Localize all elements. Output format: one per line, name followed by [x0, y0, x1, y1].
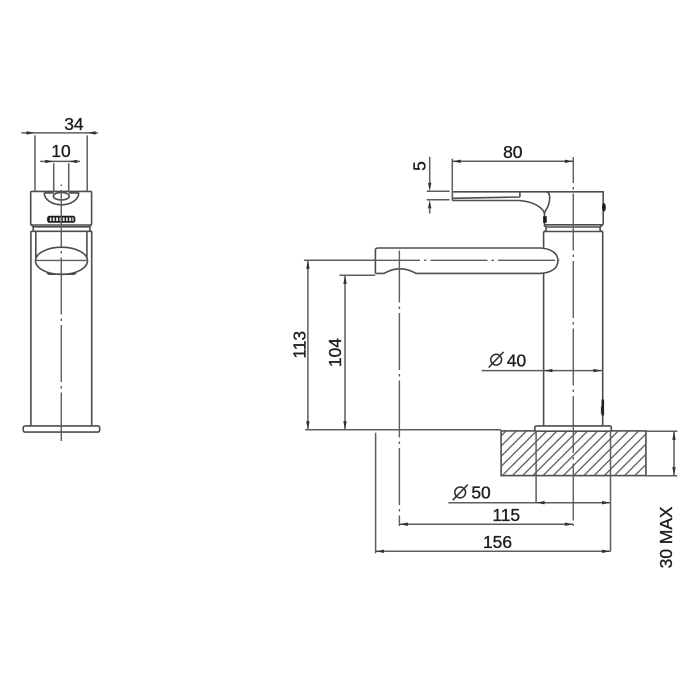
svg-text:113: 113 [290, 331, 310, 359]
svg-text:40: 40 [507, 351, 526, 371]
svg-text:50: 50 [471, 482, 490, 502]
svg-text:115: 115 [492, 505, 520, 525]
svg-text:104: 104 [325, 338, 345, 367]
svg-text:30 MAX: 30 MAX [656, 506, 676, 568]
svg-text:80: 80 [503, 142, 522, 162]
svg-text:156: 156 [483, 532, 512, 552]
svg-text:10: 10 [51, 141, 70, 161]
svg-text:5: 5 [410, 161, 430, 171]
svg-text:34: 34 [64, 114, 84, 134]
